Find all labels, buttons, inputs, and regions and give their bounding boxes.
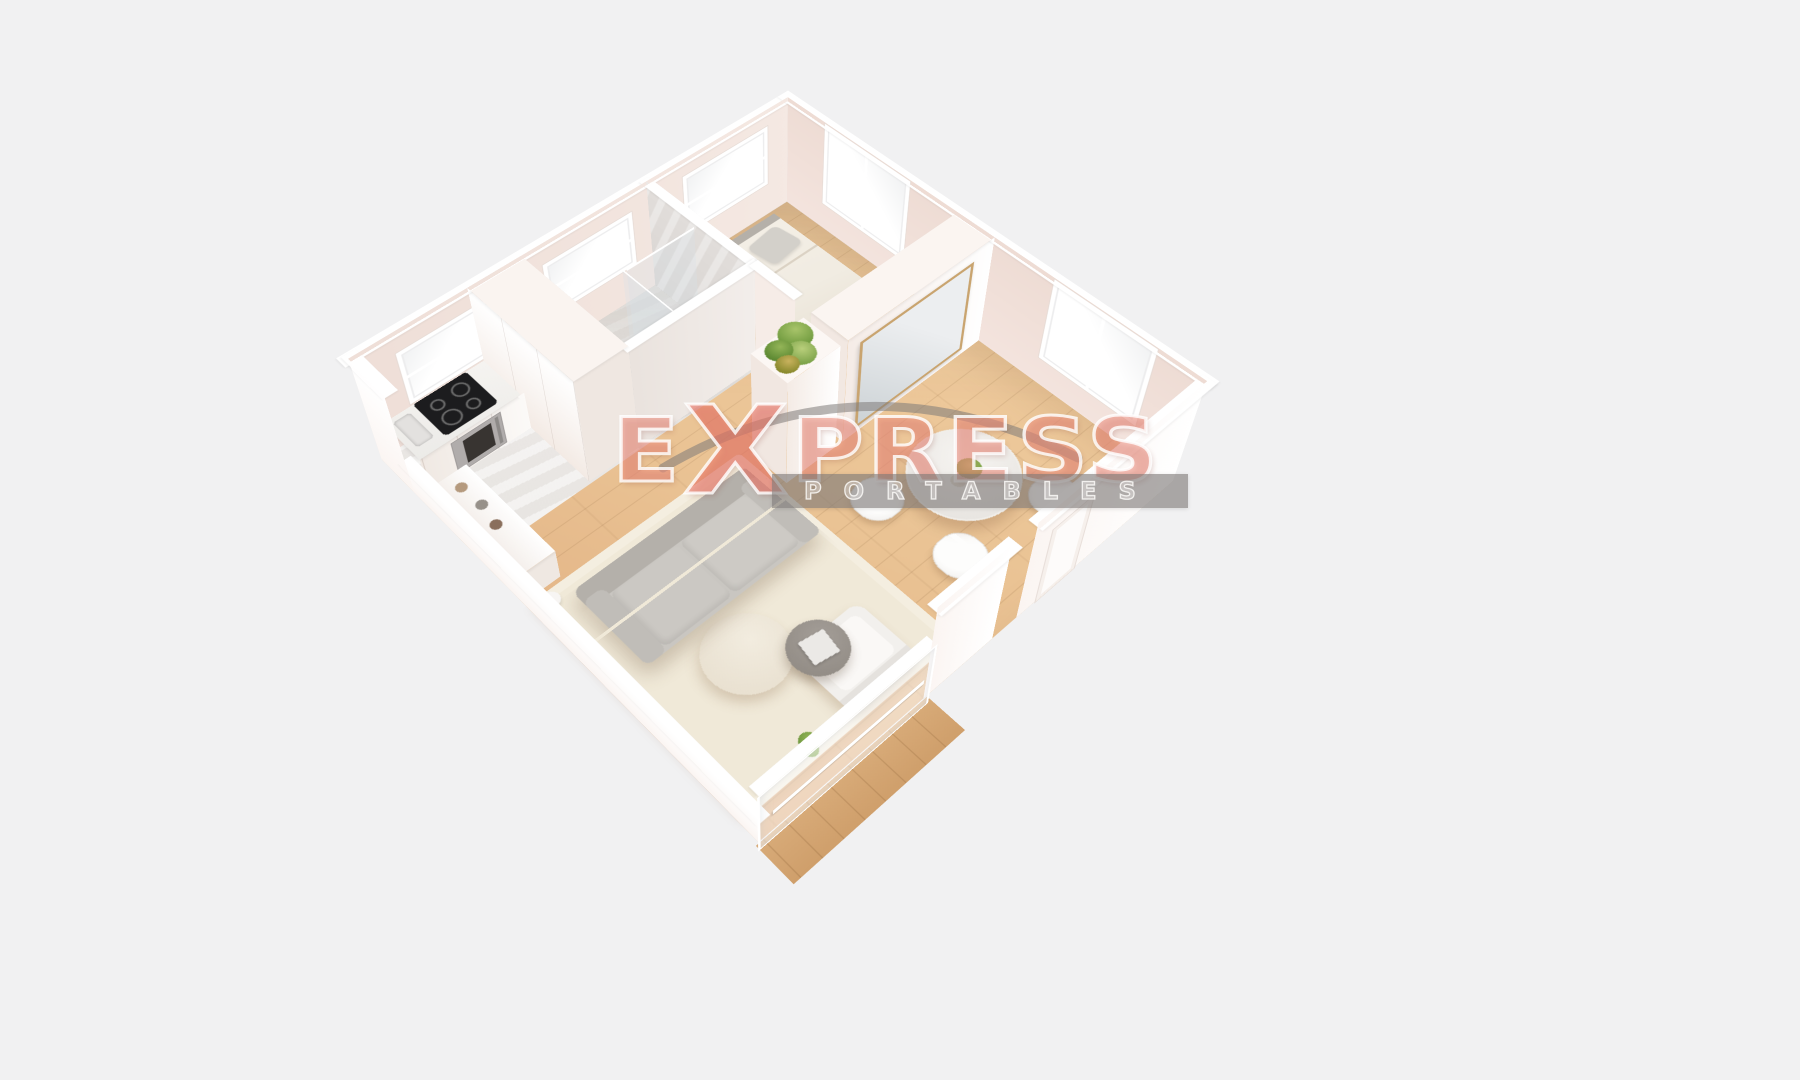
square-tray bbox=[798, 629, 841, 666]
jar bbox=[473, 498, 491, 512]
floor-space bbox=[381, 202, 1173, 843]
jar bbox=[453, 480, 471, 494]
jar bbox=[487, 517, 505, 532]
oven-handle bbox=[494, 416, 503, 444]
